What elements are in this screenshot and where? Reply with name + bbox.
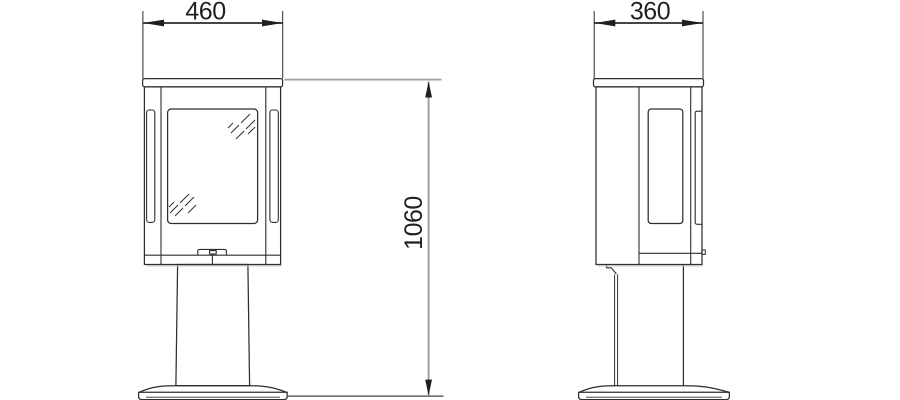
front-door-glass (168, 109, 258, 224)
front-body (144, 87, 280, 265)
front-view (139, 79, 288, 400)
arrowhead-left-icon (595, 20, 616, 27)
width-dimension-front: 460 (143, 0, 283, 79)
height-dimension: 1060 (285, 80, 444, 397)
front-base (139, 386, 288, 400)
front-top-plate (143, 79, 283, 87)
side-top-plate (594, 79, 704, 87)
arrowhead-right-icon (682, 20, 703, 27)
side-pedestal-column (615, 265, 684, 386)
arrowhead-right-icon (262, 20, 283, 27)
dimension-drawing-canvas: 460 360 1060 (0, 0, 900, 400)
front-side-glass-left (147, 110, 155, 222)
technical-drawing: 460 360 1060 (0, 0, 900, 400)
front-door-latch (198, 249, 227, 255)
front-base-skirt (139, 386, 287, 393)
side-rear-strip (695, 111, 701, 224)
arrowhead-left-icon (143, 20, 164, 27)
side-base-rim (579, 392, 730, 399)
side-base (579, 386, 730, 400)
side-window-glass (648, 109, 683, 224)
glass-reflection-hatch-top-right (228, 114, 255, 139)
glass-reflection-hatch-bottom-left (169, 194, 196, 216)
side-view (579, 79, 730, 400)
front-side-glass-right (270, 110, 278, 222)
front-width-label: 460 (185, 0, 225, 26)
side-width-label: 360 (630, 0, 670, 26)
side-body (596, 87, 702, 265)
width-dimension-side: 360 (594, 0, 703, 79)
front-pedestal-column (176, 265, 250, 386)
height-label: 1060 (400, 196, 428, 250)
front-base-rim (139, 392, 288, 399)
arrowhead-down-icon (425, 380, 432, 396)
arrowhead-up-icon (425, 82, 432, 98)
side-base-skirt (579, 386, 729, 393)
latch-knob (210, 251, 217, 254)
